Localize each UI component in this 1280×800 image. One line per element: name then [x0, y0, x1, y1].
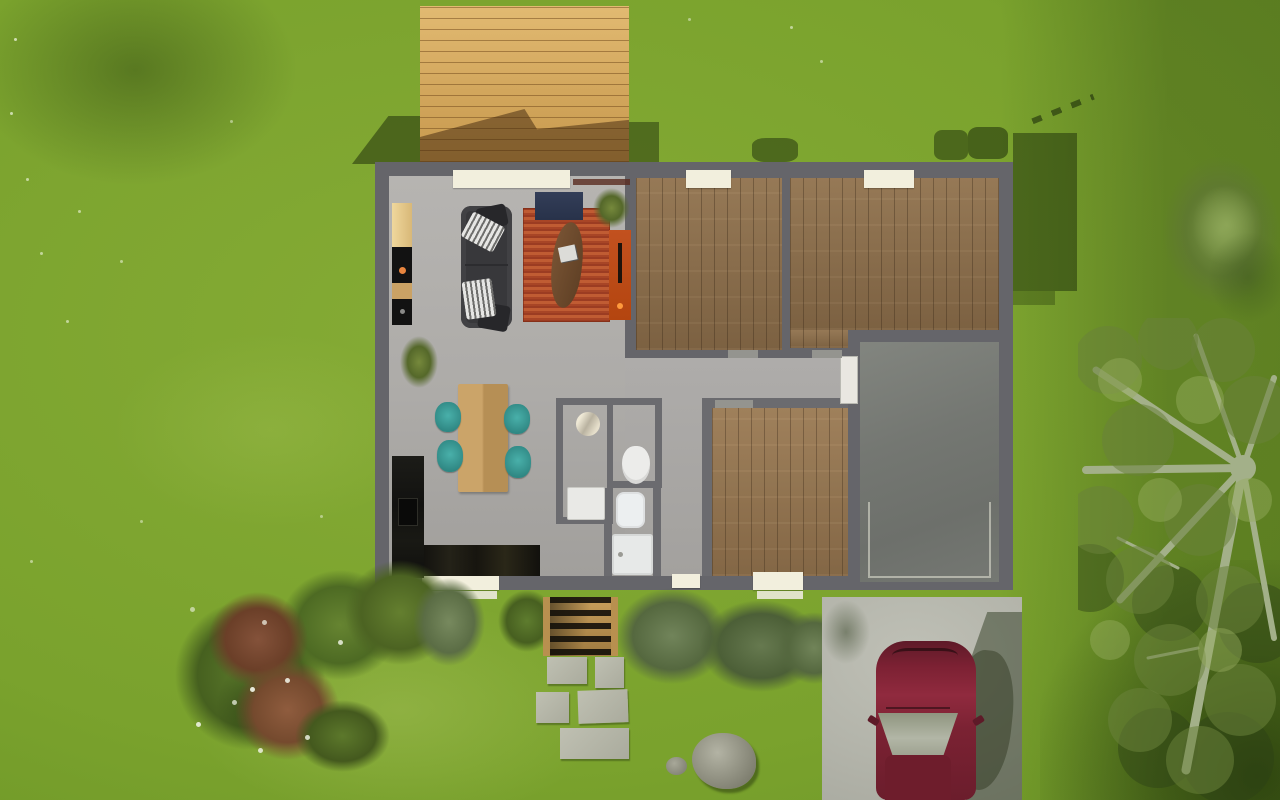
stepping-stone[interactable] — [595, 657, 624, 688]
media-glow-dot — [617, 303, 623, 309]
bedroom3-door[interactable] — [715, 400, 753, 408]
dining-chair[interactable] — [435, 402, 461, 432]
room-bedroom-3[interactable] — [712, 408, 848, 576]
wall — [702, 398, 712, 576]
grass-flower-speckles — [14, 38, 17, 41]
window-bedroom3-south[interactable] — [753, 572, 803, 590]
stepping-stone[interactable] — [536, 692, 569, 723]
wall — [556, 398, 563, 524]
sofa-seam — [465, 264, 508, 266]
deck-shadow — [352, 116, 422, 164]
washbasin[interactable] — [616, 492, 645, 528]
room-bedroom-1[interactable] — [636, 178, 782, 350]
tree-large-lower — [1078, 318, 1280, 800]
shrub-graygreen — [413, 578, 485, 666]
boulder-small — [666, 757, 687, 775]
scene — [0, 0, 1280, 800]
window-bedroom1-north[interactable] — [686, 170, 731, 188]
stepping-stone[interactable] — [577, 689, 628, 724]
wall-shelf — [573, 179, 630, 185]
white-flowers — [250, 687, 255, 692]
car-wiper-line — [886, 707, 950, 709]
tree-canopy-shade — [1208, 232, 1280, 322]
shelf-wood-top — [392, 203, 412, 247]
deck-shade-overlay — [420, 6, 629, 162]
wall — [655, 398, 662, 488]
window-ledge-outside — [757, 591, 803, 599]
stepping-stone[interactable] — [547, 657, 587, 684]
stove-dot — [399, 267, 406, 274]
entry-steps[interactable] — [543, 597, 618, 656]
shelf-unit[interactable] — [392, 203, 412, 325]
sofa[interactable] — [461, 206, 512, 328]
house-shadow — [1013, 133, 1077, 291]
house[interactable] — [375, 162, 1013, 590]
dining-chair[interactable] — [437, 440, 463, 472]
chimney-shadow — [934, 130, 968, 160]
house-shadow-tail — [1013, 291, 1055, 305]
room-bedroom-2-strip — [790, 330, 848, 348]
garage-door-outline — [868, 502, 991, 578]
dining-chair[interactable] — [505, 446, 531, 478]
potted-plant-living[interactable] — [593, 188, 630, 228]
dining-table[interactable] — [458, 384, 508, 492]
chimney-shadow — [968, 127, 1008, 159]
steps-shade — [550, 597, 611, 656]
magazine — [558, 244, 578, 262]
washing-machine[interactable] — [567, 487, 605, 520]
shelf-wood-mid — [392, 283, 412, 299]
wall — [653, 488, 661, 576]
wall — [604, 488, 612, 576]
car-roof — [885, 755, 951, 800]
stepping-stone[interactable] — [560, 728, 629, 759]
window-living-north[interactable] — [453, 170, 570, 188]
sofa-pillow-striped — [462, 278, 497, 320]
knob-dot — [400, 309, 405, 314]
shower-tray[interactable] — [612, 534, 653, 575]
chimney-shadow — [752, 138, 798, 162]
round-mat[interactable] — [576, 412, 600, 436]
deck-shadow-right — [629, 122, 659, 162]
potted-plant-dining[interactable] — [400, 336, 438, 388]
terrace-deck[interactable] — [420, 6, 629, 162]
grass-shade-topleft — [0, 0, 360, 230]
kitchen-counter-bottom[interactable] — [424, 545, 540, 576]
bush-green — [295, 700, 390, 772]
car[interactable] — [868, 641, 984, 800]
toilet[interactable] — [622, 446, 650, 484]
navy-floor-cushion[interactable] — [535, 192, 583, 220]
bedroom2-door[interactable] — [812, 350, 842, 358]
media-cabinet[interactable] — [609, 230, 631, 320]
garage-interior-door[interactable] — [840, 356, 858, 404]
boulder[interactable] — [692, 733, 756, 789]
kitchen-sink — [398, 498, 418, 526]
dining-chair[interactable] — [504, 404, 530, 434]
room-garage[interactable] — [860, 342, 999, 582]
room-bedroom-2[interactable] — [790, 178, 999, 330]
media-slot — [618, 243, 622, 283]
bedroom1-door[interactable] — [728, 350, 758, 358]
window-bedroom2-north[interactable] — [864, 170, 914, 188]
window-hall-south[interactable] — [672, 574, 700, 588]
driveway-tree-shadow — [822, 600, 870, 664]
